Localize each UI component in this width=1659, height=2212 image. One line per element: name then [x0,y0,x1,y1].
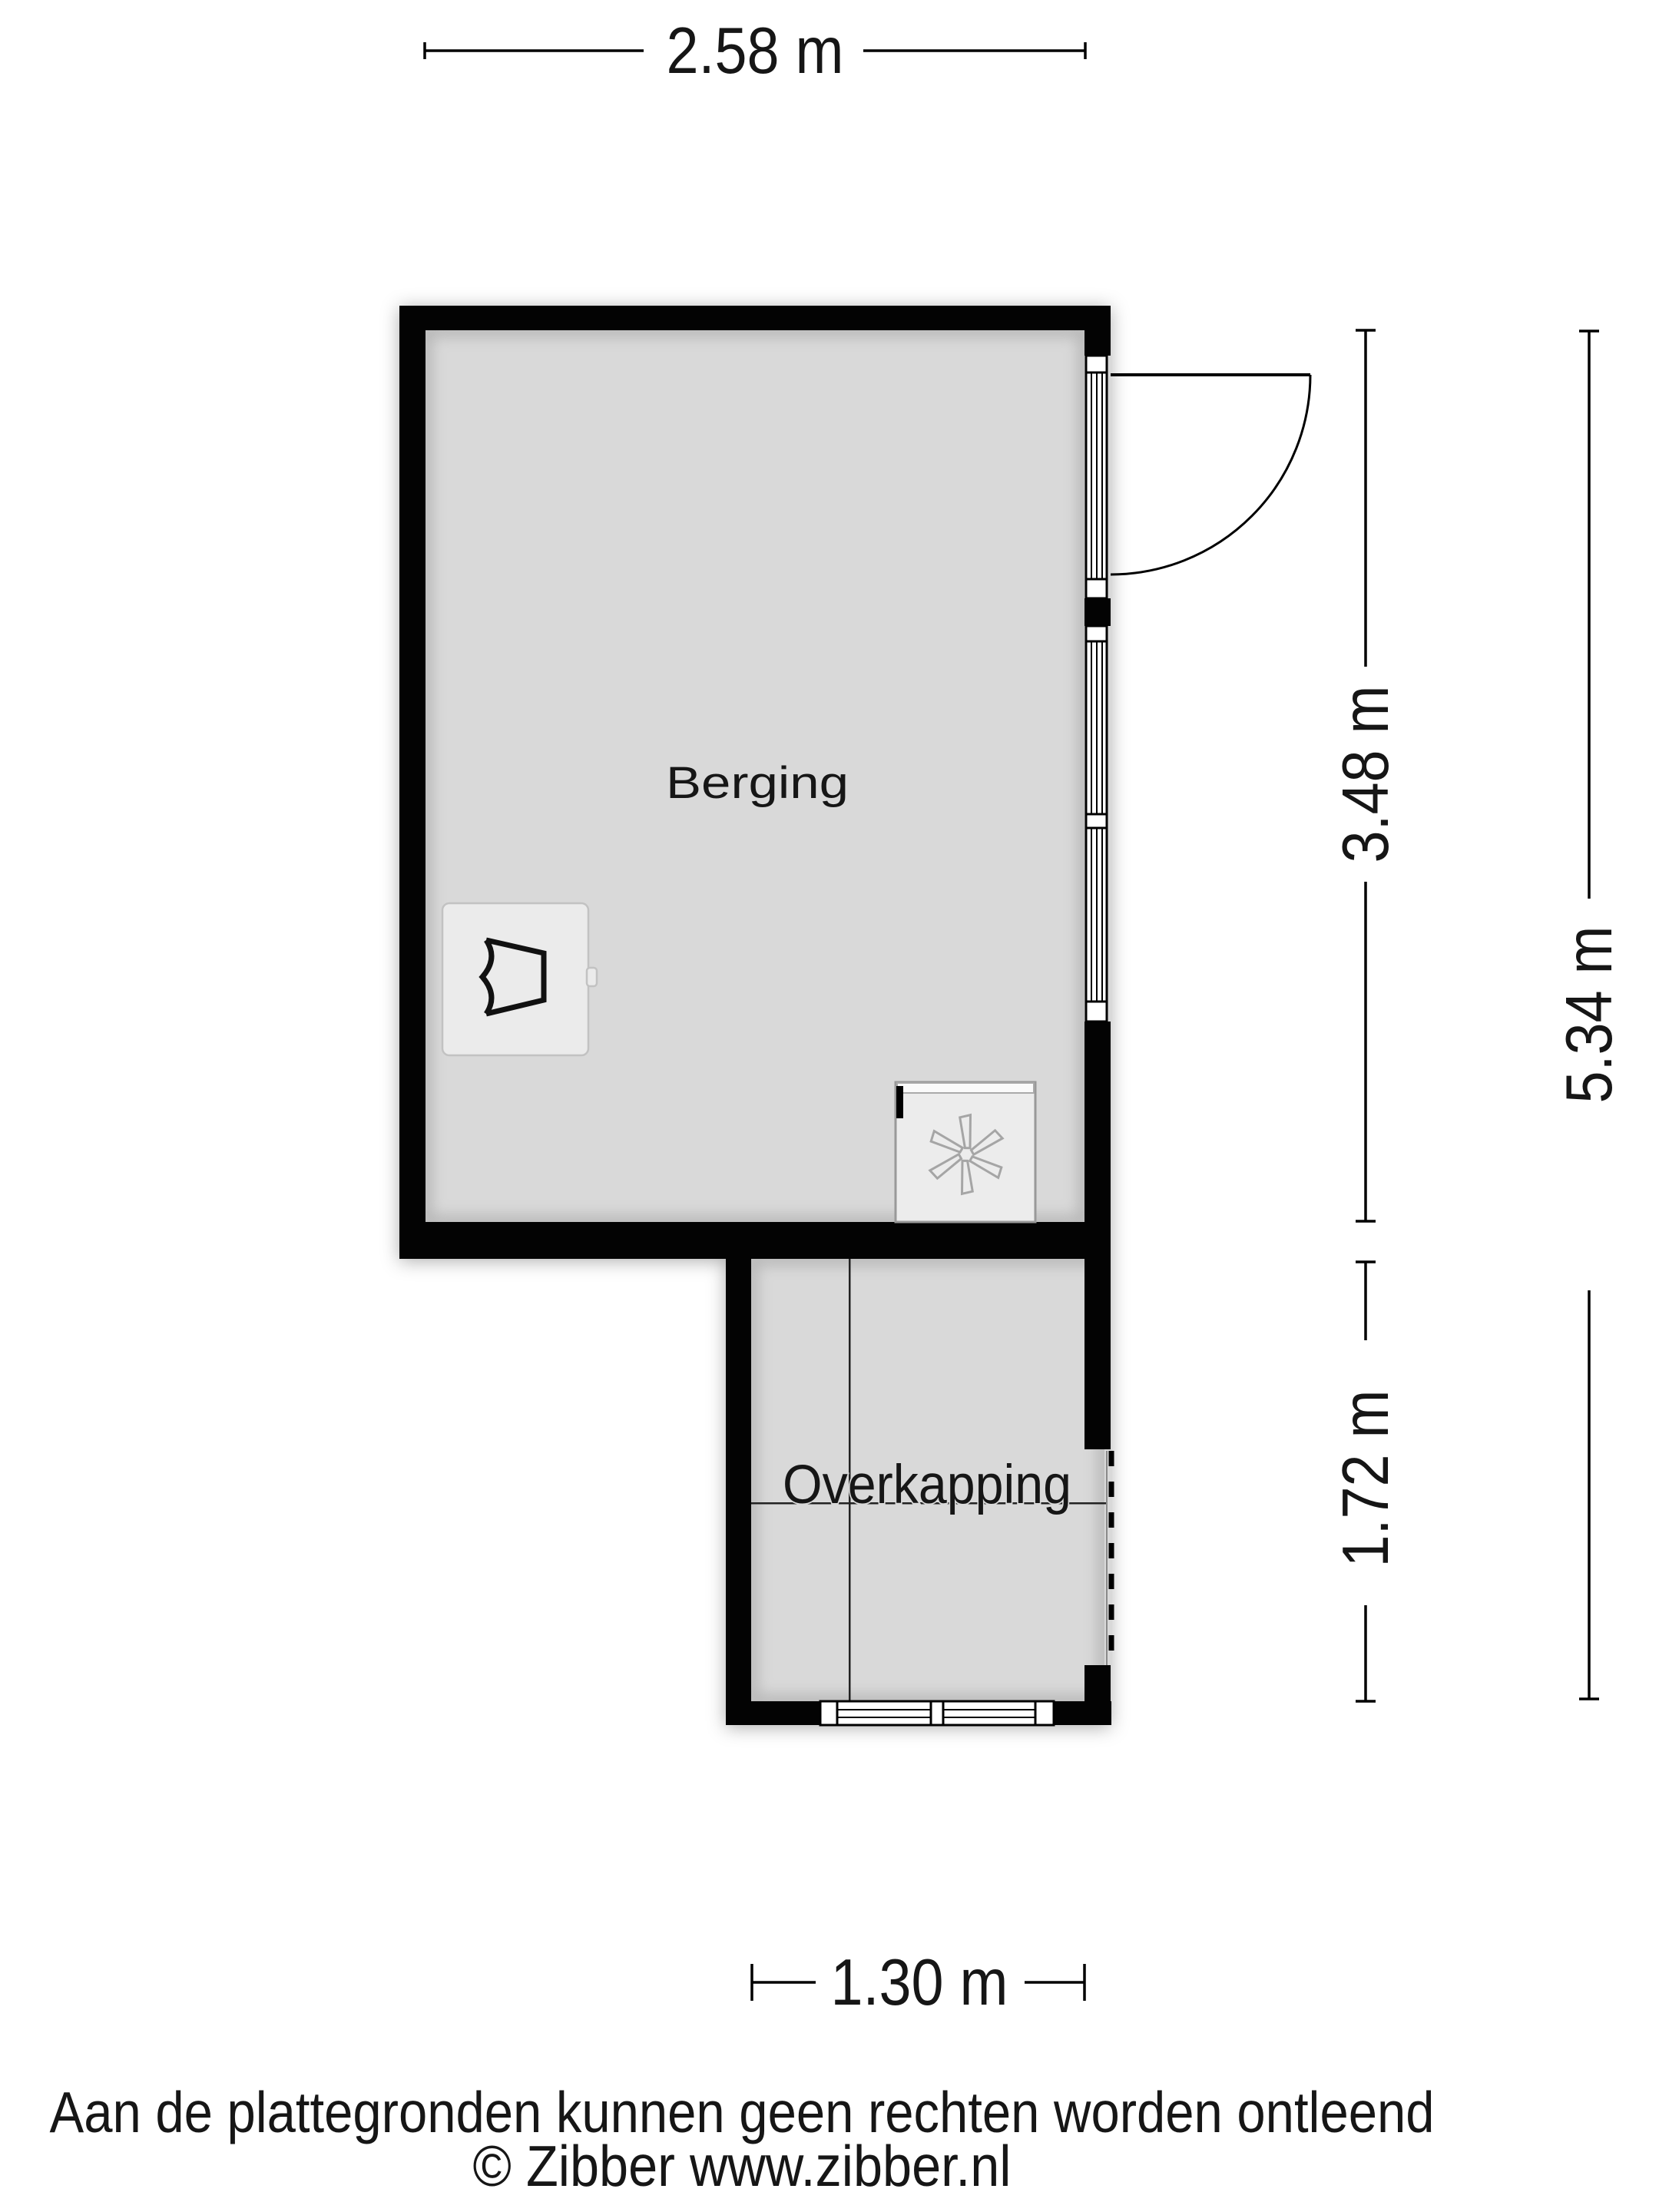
svg-text:Overkapping: Overkapping [783,1455,1071,1515]
svg-text:© Zibber www.zibber.nl: © Zibber www.zibber.nl [473,2134,1012,2198]
svg-text:5.34 m: 5.34 m [1553,926,1626,1104]
svg-text:1.30 m: 1.30 m [831,1946,1008,2019]
svg-text:2.58 m: 2.58 m [667,15,844,88]
svg-text:3.48 m: 3.48 m [1330,686,1402,863]
svg-text:Berging: Berging [666,758,849,808]
svg-text:1.72 m: 1.72 m [1330,1390,1402,1568]
